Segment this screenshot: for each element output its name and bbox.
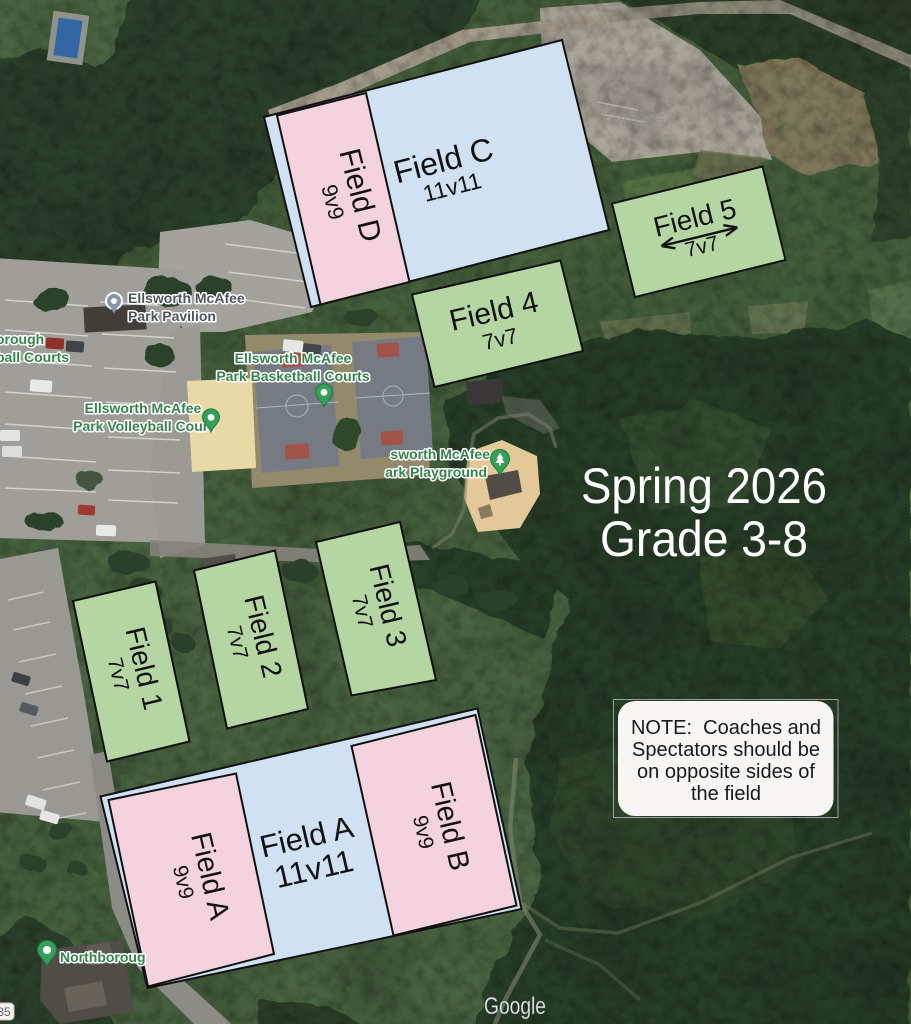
svg-text:Spring 2026: Spring 2026 (581, 458, 827, 514)
svg-text:Park Basketball Courts: Park Basketball Courts (216, 368, 369, 384)
svg-text:© 2023 G: © 2023 G (600, 111, 664, 128)
svg-text:Ellsworth McAfee: Ellsworth McAfee (85, 400, 202, 416)
svg-text:ark Playground: ark Playground (385, 464, 487, 480)
svg-text:on opposite sides of: on opposite sides of (637, 761, 815, 783)
svg-text:Google: Google (484, 993, 546, 1020)
svg-text:Park Volleyball Court: Park Volleyball Court (73, 418, 213, 434)
svg-text:Ellsworth McAfee: Ellsworth McAfee (128, 290, 245, 306)
svg-text:Spectators should be: Spectators should be (632, 739, 820, 761)
svg-text:35: 35 (0, 1005, 11, 1019)
svg-text:the field: the field (691, 783, 761, 805)
svg-text:ball Courts: ball Courts (0, 349, 69, 365)
svg-text:NOTE: Coaches and: NOTE: Coaches and (631, 717, 821, 739)
svg-text:Ellsworth McAfee: Ellsworth McAfee (235, 350, 352, 366)
svg-text:Grade 3-8: Grade 3-8 (600, 511, 808, 567)
svg-text:sworth McAfee: sworth McAfee (390, 446, 490, 462)
svg-text:Park Pavilion: Park Pavilion (128, 308, 216, 324)
svg-text:orough: orough (0, 331, 44, 347)
svg-text:Northboroug: Northboroug (60, 949, 146, 965)
